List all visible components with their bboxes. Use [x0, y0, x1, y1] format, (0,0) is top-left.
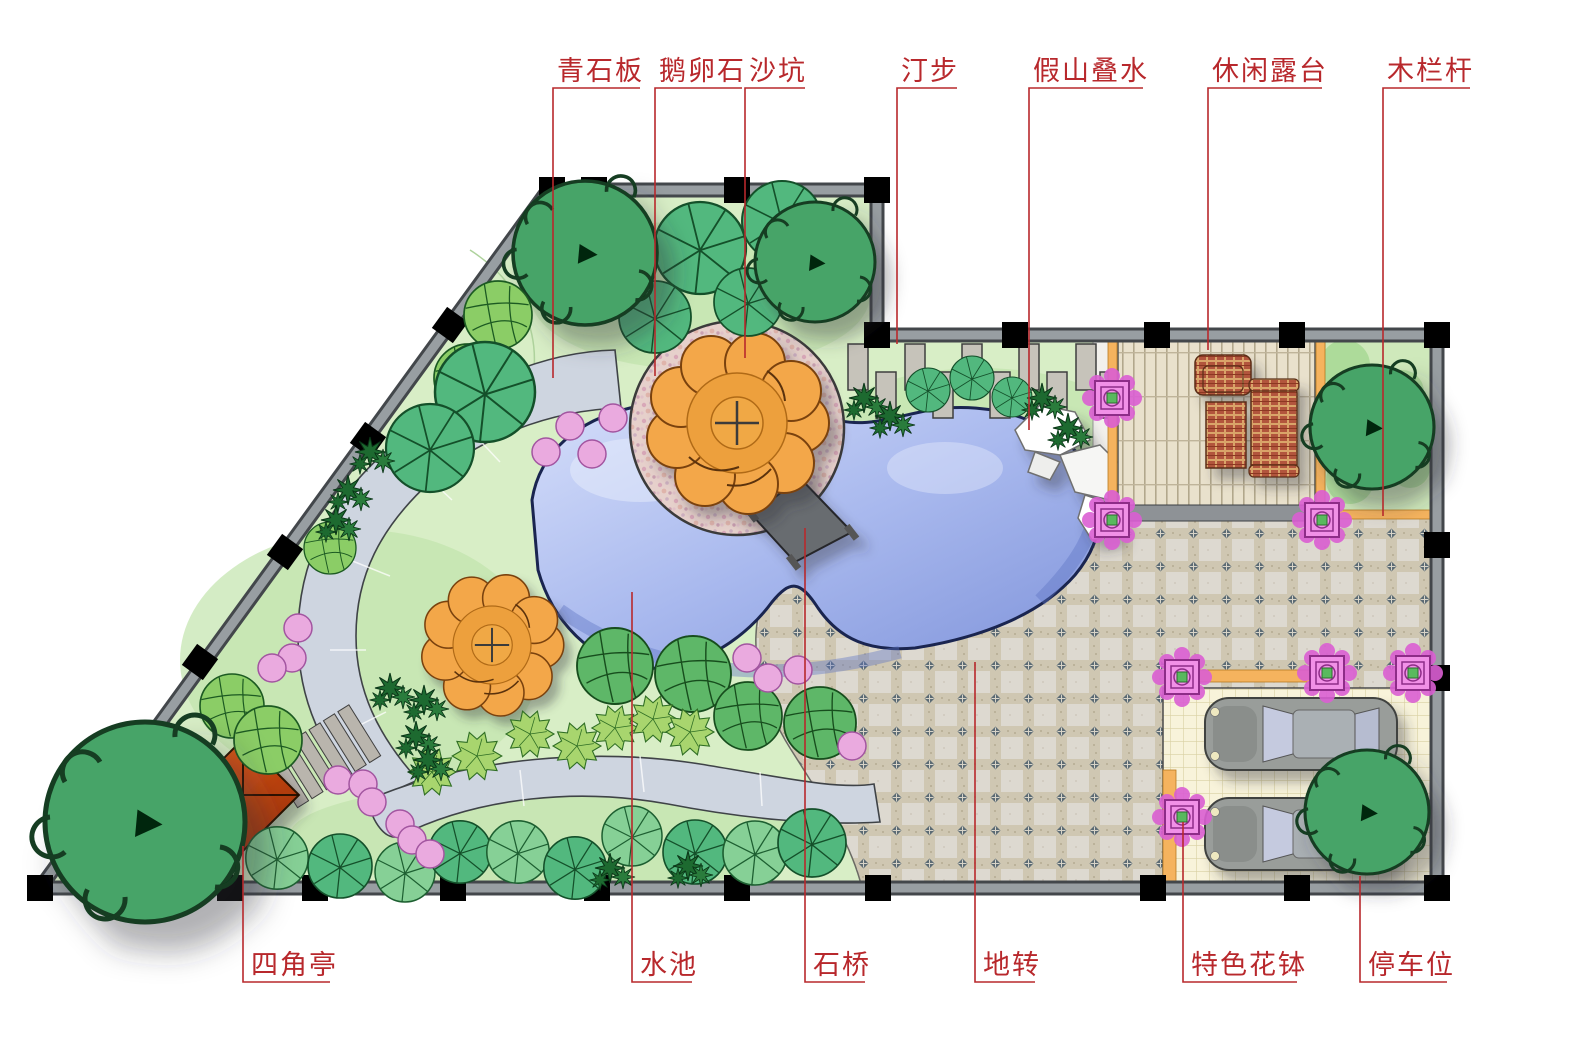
annotation-stepping-stones: 汀步: [897, 56, 959, 344]
annotation-label: 木栏杆: [1387, 56, 1474, 86]
annotation-label: 青石板: [557, 56, 644, 86]
tree: [234, 706, 302, 774]
tree: [487, 821, 549, 883]
tree: [950, 356, 994, 400]
tree: [464, 281, 532, 349]
garden-plan-canvas: 青石板 鹅卵石 沙坑 汀步 假山叠水 休闲露台 木栏杆 四角亭 水池 石桥 地转: [0, 0, 1575, 1055]
tree: [246, 827, 308, 889]
annotation-label: 水池: [640, 950, 698, 980]
annotation-label: 鹅卵石: [659, 56, 746, 86]
annotation-label: 地转: [983, 950, 1041, 980]
annotation-label: 汀步: [901, 56, 959, 86]
sofa: [1251, 383, 1297, 475]
tree: [723, 821, 787, 885]
tree: [386, 404, 474, 492]
annotation-label: 沙坑: [749, 56, 807, 86]
annotation-label: 停车位: [1368, 950, 1455, 980]
annotation-label: 石桥: [813, 950, 871, 980]
tree: [577, 628, 653, 704]
annotation-terrace: 休闲露台: [1208, 56, 1328, 350]
annotation-label: 假山叠水: [1033, 56, 1149, 86]
tree: [308, 834, 372, 898]
tree: [778, 809, 846, 877]
tree: [906, 368, 950, 412]
annotation-label: 休闲露台: [1212, 56, 1328, 86]
annotation-label: 四角亭: [251, 950, 338, 980]
annotation-label: 特色花钵: [1191, 950, 1307, 980]
leisure-terrace: [1118, 338, 1315, 521]
coffee-table: [1206, 402, 1246, 468]
